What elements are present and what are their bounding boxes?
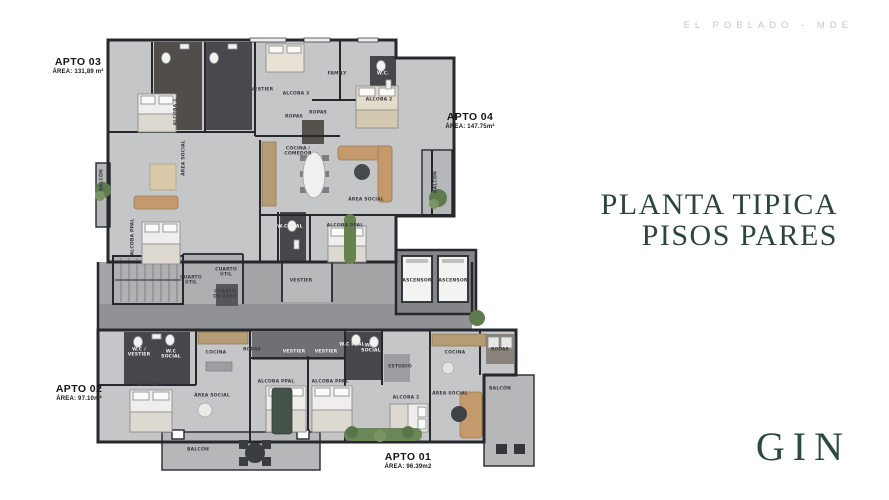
- toilet-glyph: [352, 335, 361, 346]
- toilet-glyph: [162, 53, 171, 64]
- plant-glyph: [469, 310, 485, 326]
- bed-glyph: [266, 44, 304, 72]
- kitchen-island: [206, 362, 232, 371]
- bed-glyph: [130, 390, 172, 432]
- sofa-glyph: [272, 388, 292, 434]
- page: VESTIERALCOBA 3FAMILYW.C.ROPASROPASALCOB…: [0, 0, 889, 500]
- column-marker: [172, 430, 184, 439]
- coffee-table-glyph: [451, 406, 467, 422]
- sink-glyph: [152, 334, 161, 339]
- sink-glyph: [386, 80, 391, 89]
- kitchen-island: [442, 362, 454, 374]
- toilet-glyph: [288, 221, 297, 232]
- hedge-glyph: [344, 214, 356, 264]
- toilet-glyph: [370, 337, 379, 348]
- sink-glyph: [294, 240, 299, 249]
- washer-glyph: [488, 337, 499, 348]
- elevator-cab: [402, 256, 432, 302]
- table-glyph: [150, 164, 176, 190]
- page-title-line2: PISOS PARES: [601, 220, 838, 251]
- toilet-glyph: [210, 53, 219, 64]
- bed-glyph: [138, 94, 176, 132]
- bed-glyph: [142, 222, 180, 264]
- page-title-line1: PLANTA TIPICA: [601, 189, 838, 220]
- dryer-glyph: [501, 337, 512, 348]
- toilet-glyph: [166, 335, 175, 346]
- kitchen-counter: [262, 142, 276, 206]
- elevator-core: [396, 250, 476, 314]
- sofa-glyph: [378, 146, 392, 202]
- kitchen-counter: [198, 332, 248, 344]
- dining-table: [300, 152, 329, 198]
- coffee-table-glyph: [354, 164, 370, 180]
- kitchen-counter: [432, 334, 486, 346]
- elevator-cab: [438, 256, 468, 302]
- bed-glyph: [356, 86, 398, 128]
- balcony-chair: [496, 444, 507, 454]
- sofa-glyph: [134, 196, 178, 209]
- sink-glyph: [228, 44, 237, 49]
- page-title: PLANTA TIPICA PISOS PARES: [601, 189, 838, 251]
- toilet-glyph: [134, 337, 143, 348]
- bed-glyph: [312, 386, 352, 432]
- brand-logo: GIN: [756, 423, 851, 470]
- location-tagline: EL POBLADO - MDE: [684, 20, 853, 31]
- balcony-chair: [514, 444, 525, 454]
- toilet-glyph: [377, 61, 386, 72]
- table-glyph: [198, 403, 212, 417]
- sink-glyph: [180, 44, 189, 49]
